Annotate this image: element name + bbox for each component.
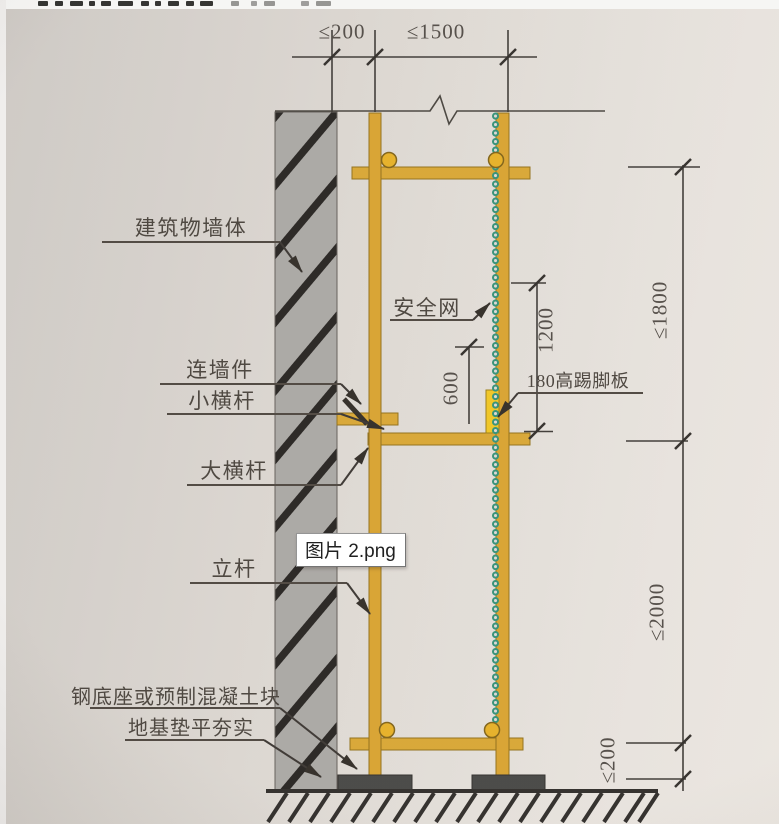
label-toe-board: 180高踢脚板 xyxy=(527,367,630,393)
label-steel-base: 钢底座或预制混凝土块 xyxy=(71,681,281,710)
right-dimension-line xyxy=(626,165,700,791)
building-wall-hatched xyxy=(275,112,337,792)
dimension-1200 xyxy=(511,283,553,432)
dim-right-base-height: ≤200 xyxy=(596,736,621,783)
dim-safety-net-height: 1200 xyxy=(534,307,559,353)
label-building-wall: 建筑物墙体 xyxy=(135,212,248,242)
label-small-ledger: 小横杆 xyxy=(188,385,256,415)
ground xyxy=(266,791,658,822)
base-blocks xyxy=(338,775,545,791)
dim-top-wall-offset: ≤200 xyxy=(318,20,365,45)
dim-top-bay-width: ≤1500 xyxy=(407,20,466,45)
label-standing-pole: 立杆 xyxy=(212,553,257,583)
scaffold-diagram-photo: 建筑物墙体 连墙件 小横杆 大横杆 立杆 钢底座或预制混凝土块 地基垫平夯实 安… xyxy=(0,0,779,824)
dim-guard-height: 600 xyxy=(439,371,464,406)
image-filename-tag[interactable]: 图片 2.png xyxy=(296,533,406,567)
dim-right-upper-spacing: ≤1800 xyxy=(648,281,673,340)
label-wall-tie: 连墙件 xyxy=(186,354,254,384)
label-safety-net: 安全网 xyxy=(393,292,461,322)
dim-right-lower-spacing: ≤2000 xyxy=(645,583,670,642)
label-foundation: 地基垫平夯实 xyxy=(128,712,254,741)
label-main-ledger: 大横杆 xyxy=(200,455,268,485)
